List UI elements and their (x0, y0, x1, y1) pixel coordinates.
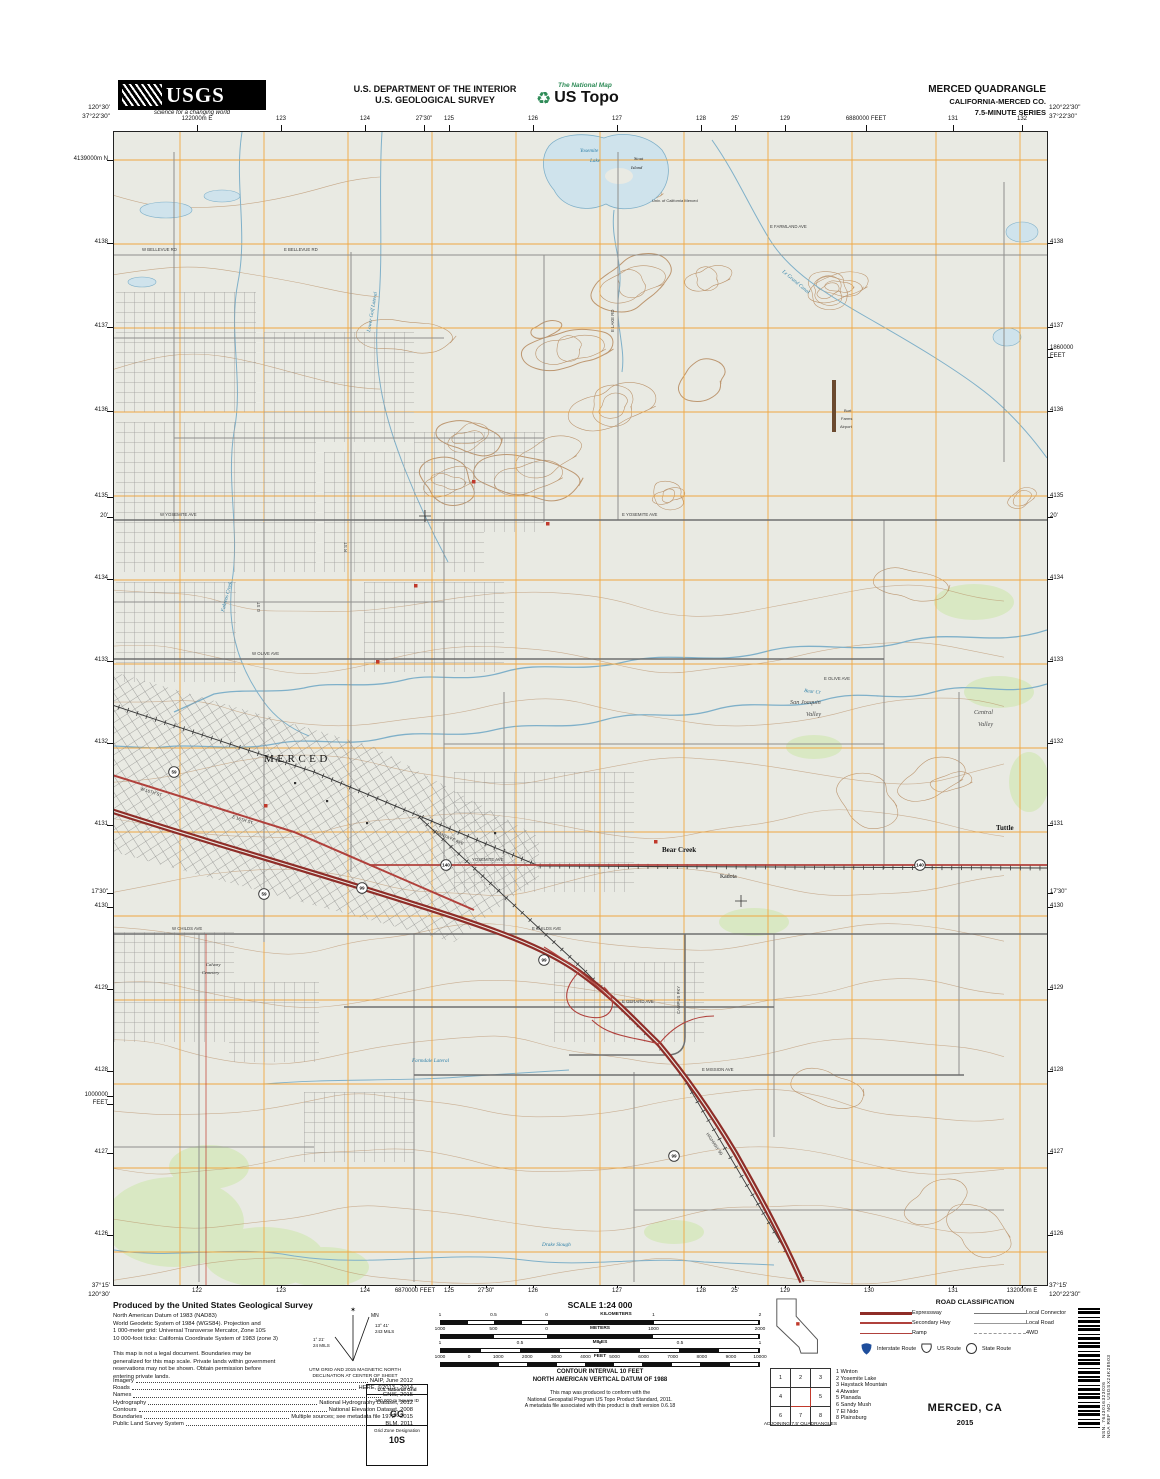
map-label: Calvary (206, 962, 221, 967)
collar-tick-label: 25' (731, 116, 739, 122)
map-label: Burt (844, 408, 852, 413)
sec-line-sample (860, 1322, 912, 1324)
quad-location-marker (796, 1322, 799, 1325)
svg-text:99: 99 (541, 958, 547, 963)
collar-tick-label: 4129 (1050, 985, 1063, 991)
usgs-logo: USGS (118, 80, 266, 110)
sheet-year: 2015 (900, 1418, 1030, 1427)
adjoining-cell: 3 (811, 1369, 831, 1388)
collar-tick-label: 124 (360, 1288, 370, 1294)
collar-tick-label: 4139000m N (72, 156, 108, 162)
dept-line1: U.S. DEPARTMENT OF THE INTERIOR (295, 84, 575, 95)
corner-topright-lat: 37°22'30" (1049, 113, 1077, 120)
map-label: YOSEMITE AVE (472, 857, 504, 862)
collar-tick-label: 4138 (1050, 239, 1063, 245)
collar-tick-label: 17'30" (1050, 889, 1067, 895)
gn-mils: 24 MILS (313, 1343, 330, 1348)
svg-text:59: 59 (261, 892, 267, 897)
st-shield-icon (965, 1342, 978, 1355)
collar-tick-label: 4137 (1050, 323, 1063, 329)
map-label: Kadota (720, 874, 737, 880)
adjoining-names: 1 Winton2 Yosemite Lake3 Haystack Mounta… (836, 1369, 887, 1422)
map-label: R ST (343, 542, 348, 552)
map-label: Drake Slough (541, 1242, 571, 1248)
lrd-line-sample (974, 1323, 1026, 1324)
gn-degrees: 1° 21' (313, 1337, 325, 1342)
us-shield-icon (920, 1342, 933, 1355)
svg-text:99: 99 (671, 1154, 677, 1159)
map-label: E OLIVE AVE (824, 676, 850, 681)
collar-tick-label: 4126 (72, 1231, 108, 1237)
department-heading: U.S. DEPARTMENT OF THE INTERIOR U.S. GEO… (295, 84, 575, 106)
collar-tick-label: 129 (780, 1288, 790, 1294)
adjoining-quads-grid: 12345678 (770, 1368, 831, 1426)
map-label: Valley (978, 721, 993, 728)
collar-tick-label: 129 (780, 116, 790, 122)
usgs-wordmark: USGS (166, 83, 225, 108)
road-class-label: Ramp (912, 1330, 974, 1336)
true-north-star: ✶ (350, 1306, 356, 1314)
usng-box: U.S. National Grid 100,000-m Square ID G… (366, 1384, 428, 1466)
collar-tick-label: 4129 (72, 985, 108, 991)
map-label: E YOSEMITE AVE (622, 512, 658, 517)
collar-tick-label: 132 (1017, 116, 1027, 122)
map-label: MERCED (264, 753, 331, 765)
collar-tick-label: FEET (72, 1100, 108, 1106)
fwd-line-sample (974, 1333, 1026, 1334)
collar-tick-label: 4131 (1050, 821, 1063, 827)
urban-areas (114, 292, 704, 1162)
map-label: HIGHWAY 99 (705, 1132, 724, 1157)
collar-tick-label: 128 (696, 116, 706, 122)
is-shield-icon (860, 1342, 873, 1355)
recycle-swirl-icon: ♻ (536, 90, 551, 107)
map-label: W OLIVE AVE (252, 651, 279, 656)
mn-label: MN (371, 1313, 379, 1319)
collar-tick-label: FEET (1050, 353, 1065, 359)
collar-tick-label: 4134 (1050, 575, 1063, 581)
sheet-name: MERCED, CA (900, 1402, 1030, 1414)
collar-tick-label: 123 (276, 116, 286, 122)
ustopo-label: US Topo (554, 89, 619, 107)
road-class-label: Expressway (912, 1310, 974, 1316)
quadrangle-title-block: MERCED QUADRANGLE CALIFORNIA-MERCED CO. … (800, 84, 1046, 117)
collar-tick-label: 4136 (1050, 407, 1063, 413)
svg-text:99: 99 (359, 886, 365, 891)
map-label: Yosemite (580, 148, 599, 154)
collar-tick-label: 130 (864, 1288, 874, 1294)
contour-note: CONTOUR INTERVAL 10 FEET NORTH AMERICAN … (440, 1368, 760, 1384)
shield-label: US Route (937, 1346, 961, 1352)
ustopo-logo: The National Map ♻ US Topo (536, 82, 656, 107)
map-label: Airport (840, 424, 853, 429)
collar-tick-label: 122 (192, 1288, 202, 1294)
adjoining-cell: 5 (811, 1388, 831, 1407)
collar-tick-label: 124 (360, 116, 370, 122)
collar-tick-label: 6870000 FEET (395, 1288, 435, 1294)
collar-tick-label: 4132 (1050, 739, 1063, 745)
declination-diagram: ✶ MN 13° 41' 243 MILS 1° 21' 24 MILS (295, 1303, 415, 1367)
collar-tick-label: 126 (528, 1288, 538, 1294)
collar-tick-label: 4135 (1050, 493, 1063, 499)
usgs-logo-stripes-icon (122, 84, 162, 106)
collar-tick-label: 4133 (72, 657, 108, 663)
collar-tick-label: 4136 (72, 407, 108, 413)
farmdale-lateral (264, 1070, 569, 1084)
collar-tick-label: 123 (276, 1288, 286, 1294)
collar-tick-label: 4137 (72, 323, 108, 329)
map-label: E LAKE RD (610, 310, 615, 332)
svg-text:140: 140 (442, 863, 450, 868)
corner-bottomright-lat: 37°15' (1049, 1282, 1067, 1289)
corner-topleft-lat: 37°22'30" (40, 113, 110, 120)
map-label: W BELLEVUE RD (142, 247, 177, 252)
collar-tick-label: 4127 (1050, 1149, 1063, 1155)
adjoining-cell: 4 (771, 1388, 791, 1407)
california-outline (766, 1297, 836, 1357)
map-label: Univ. of California Merced (652, 198, 698, 203)
map-label: CAMPUS PKY (676, 986, 681, 1014)
usgs-topo-sheet: USGS science for a changing world U.S. D… (0, 0, 1160, 1479)
svg-text:140: 140 (916, 863, 924, 868)
collar-tick-label: 27'30" (478, 1288, 495, 1294)
map-label: W CHILDS AVE (172, 926, 202, 931)
collar-tick-label: 131 (948, 1288, 958, 1294)
corner-bottomleft-lon: 120°30' (40, 1291, 110, 1298)
usng-zone-label: Grid Zone Designation (367, 1425, 427, 1433)
adjoining-cell: 1 (771, 1369, 791, 1388)
exp-line-sample (860, 1312, 912, 1315)
collar-tick-label: 125 (444, 1288, 454, 1294)
collar-tick-label: 4127 (72, 1149, 108, 1155)
adjoining-caption: ADJOINING 7.5' QUADRANGLES (758, 1422, 843, 1427)
burt-farms-runway (832, 380, 836, 432)
scale-bar: 10.500.51MILES (440, 1341, 760, 1355)
collar-tick-label: 127 (612, 116, 622, 122)
map-label: Farms (841, 416, 852, 421)
map-area[interactable]: 9999991401405959 MERCEDBear CreekKadotaT… (113, 131, 1048, 1286)
collar-tick-label: 125 (444, 116, 454, 122)
collar-tick-label: 20' (72, 513, 108, 519)
map-label: E GERARD AVE (622, 999, 654, 1004)
collar-tick-label: 127 (612, 1288, 622, 1294)
collar-tick-label: 4138 (72, 239, 108, 245)
shield-label: State Route (982, 1346, 1011, 1352)
adjoining-cell: 2 (791, 1369, 811, 1388)
map-label: Tuttle (996, 824, 1014, 832)
map-label: Island (630, 165, 643, 170)
collar-tick-label: 4132 (72, 739, 108, 745)
barcode-text: NSN. 7643016323026 NGA REF NO. USGSX24K2… (1102, 1308, 1112, 1438)
svg-text:59: 59 (171, 770, 177, 775)
scale-bar: 1000500010002000METERS (440, 1327, 760, 1341)
mn-degrees: 13° 41' (375, 1323, 389, 1328)
collar-tick-label: 1860000 (1050, 345, 1073, 351)
quad-series: 7.5-MINUTE SERIES (800, 108, 1046, 117)
collar-tick-label: 4128 (1050, 1067, 1063, 1073)
collar-tick-label: 27'30" (416, 116, 433, 122)
scale-bar: 1000010002000300040005000600070008000900… (440, 1355, 760, 1369)
map-label: E BELLEVUE RD (284, 247, 318, 252)
state-route-shield: 99 (539, 955, 550, 966)
collar-tick-label: 4130 (72, 903, 108, 909)
product-note: This map was produced to conform with th… (420, 1390, 780, 1410)
map-label: Le Grand Canal (780, 268, 811, 295)
map-label: E FARMLAND AVE (770, 224, 807, 229)
map-label: Cemetery (202, 970, 219, 975)
collar-tick-label: 128 (696, 1288, 706, 1294)
collar-tick-label: 4134 (72, 575, 108, 581)
collar-tick-label: 1000000 (72, 1092, 108, 1098)
national-map-label: The National Map (558, 82, 656, 89)
scale-title: SCALE 1:24 000 (440, 1300, 760, 1310)
collar-tick-label: 122000m E (182, 116, 213, 122)
map-label: E MISSION AVE (702, 1067, 734, 1072)
barcode (1078, 1308, 1100, 1428)
map-label: Bear Cr (804, 688, 822, 696)
collar-tick-label: 126 (528, 116, 538, 122)
quad-state: CALIFORNIA-MERCED CO. (800, 97, 1046, 106)
collar-tick-label: 4130 (1050, 903, 1063, 909)
collar-tick-label: 17'30" (72, 889, 108, 895)
scale-bars: 10.5012KILOMETERS1000500010002000METERS1… (440, 1313, 760, 1369)
topo-map-canvas: 9999991401405959 MERCEDBear CreekKadotaT… (114, 132, 1047, 1285)
collar-tick-label: 20' (1050, 513, 1058, 519)
scale-bar: 10.5012KILOMETERS (440, 1313, 760, 1327)
map-label: Central (974, 709, 993, 716)
ramp-line-sample (860, 1333, 912, 1334)
road-class-title: ROAD CLASSIFICATION (860, 1299, 1090, 1306)
state-route-shield: 99 (669, 1151, 680, 1162)
corner-bottomright-lon: 120°22'30" (1049, 1291, 1080, 1298)
shield-label: Interstate Route (877, 1346, 916, 1352)
state-route-shield: 59 (169, 767, 180, 778)
collar-tick-label: 6880000 FEET (846, 116, 886, 122)
mn-mils: 243 MILS (375, 1329, 394, 1334)
collar-tick-label: 4133 (1050, 657, 1063, 663)
sheet-title-block: MERCED, CA 2015 (900, 1402, 1030, 1427)
state-route-shield: 140 (441, 860, 452, 871)
quad-name: MERCED QUADRANGLE (800, 84, 1046, 95)
usng-square-label: 100,000-m Square ID (367, 1398, 427, 1403)
collar-tick-label: 4131 (72, 821, 108, 827)
map-label: Lake (589, 158, 601, 164)
dept-line2: U.S. GEOLOGICAL SURVEY (295, 95, 575, 106)
collar-tick-label: 25' (731, 1288, 739, 1294)
scale-block: SCALE 1:24 000 10.5012KILOMETERS10005000… (440, 1300, 760, 1369)
map-label: Valley (806, 711, 821, 718)
collar-tick-label: 4128 (72, 1067, 108, 1073)
collar-tick-label: 132000m E (1007, 1288, 1038, 1294)
lc-line-sample (974, 1313, 1026, 1314)
corner-topright-lon: 120°22'30" (1049, 104, 1080, 111)
state-route-shield: 140 (915, 860, 926, 871)
stout-island (605, 168, 633, 184)
declination-caption: UTM GRID AND 2015 MAGNETIC NORTH DECLINA… (270, 1368, 440, 1380)
road-class-label: Secondary Hwy (912, 1320, 974, 1326)
collar-tick-label: 4135 (72, 493, 108, 499)
nga-ref-number: NGA REF NO. USGSX24K28503 (1107, 1308, 1112, 1438)
map-label: San Joaquin (790, 699, 821, 706)
state-route-shield: 59 (259, 889, 270, 900)
yosemite-lake (543, 134, 668, 208)
map-label: Stout (634, 156, 644, 161)
usng-zone-id: 10S (367, 1435, 427, 1445)
collar-tick-label: 4126 (1050, 1231, 1063, 1237)
usng-square-id: GG (367, 1409, 427, 1419)
map-label: G ST (256, 602, 261, 612)
usng-title: U.S. National Grid (367, 1385, 427, 1395)
le-grand-canal (712, 140, 1047, 458)
map-label: Bear Creek (662, 846, 696, 854)
map-label: Farmdale Lateral (411, 1058, 450, 1064)
corner-topleft-lon: 120°30' (40, 104, 110, 111)
adjoining-cell (791, 1388, 811, 1407)
corner-bottomleft-lat: 37°15' (40, 1282, 110, 1289)
map-label: E CHILDS AVE (532, 926, 561, 931)
road-classification: ROAD CLASSIFICATION ExpresswayLocal Conn… (860, 1299, 1090, 1355)
map-label: W YOSEMITE AVE (160, 512, 197, 517)
collar-tick-label: 131 (948, 116, 958, 122)
state-route-shield: 99 (357, 883, 368, 894)
